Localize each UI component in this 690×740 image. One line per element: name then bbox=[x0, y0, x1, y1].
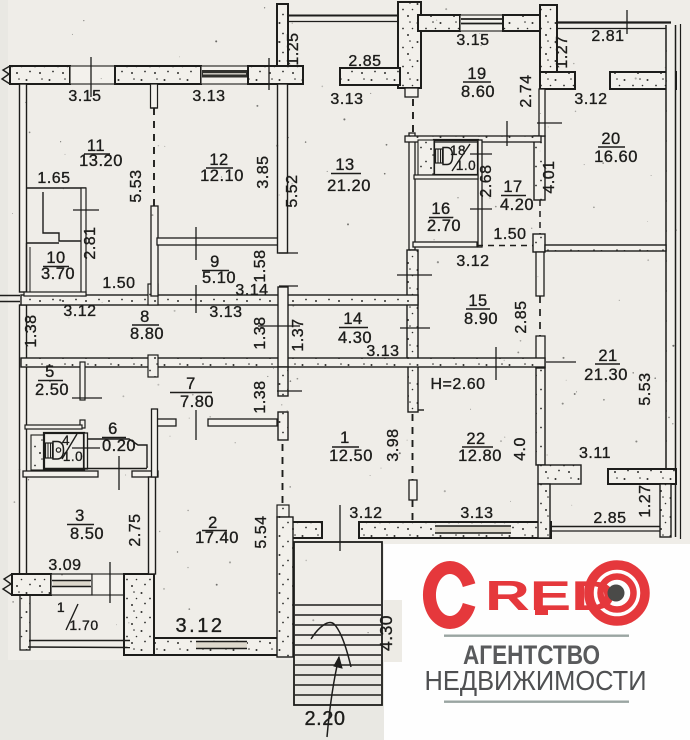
svg-text:14: 14 bbox=[343, 310, 362, 328]
svg-text:3.70: 3.70 bbox=[41, 265, 75, 283]
svg-text:13: 13 bbox=[335, 156, 354, 174]
svg-text:3.12: 3.12 bbox=[349, 505, 382, 522]
svg-text:16: 16 bbox=[431, 200, 450, 218]
svg-text:8.90: 8.90 bbox=[464, 310, 498, 328]
svg-text:2.50: 2.50 bbox=[35, 381, 69, 399]
svg-text:5: 5 bbox=[45, 363, 55, 381]
svg-text:17: 17 bbox=[503, 178, 522, 196]
svg-text:8.60: 8.60 bbox=[461, 83, 495, 101]
svg-text:3.13: 3.13 bbox=[209, 304, 242, 321]
svg-text:3.15: 3.15 bbox=[456, 32, 489, 49]
svg-text:15: 15 bbox=[468, 292, 487, 310]
svg-text:13.20: 13.20 bbox=[79, 152, 123, 170]
svg-text:2.85: 2.85 bbox=[513, 300, 530, 333]
svg-text:2.85: 2.85 bbox=[593, 510, 626, 527]
svg-text:5.10: 5.10 bbox=[202, 269, 236, 287]
svg-text:3.13: 3.13 bbox=[460, 505, 493, 522]
svg-text:1.27: 1.27 bbox=[554, 35, 571, 68]
svg-text:3.13: 3.13 bbox=[366, 343, 399, 360]
svg-text:17.40: 17.40 bbox=[195, 529, 239, 547]
svg-text:12.80: 12.80 bbox=[458, 447, 502, 465]
svg-text:1.50: 1.50 bbox=[102, 275, 135, 292]
svg-text:12.10: 12.10 bbox=[200, 167, 244, 185]
svg-text:5.53: 5.53 bbox=[128, 169, 145, 202]
svg-text:7.80: 7.80 bbox=[180, 393, 214, 411]
svg-text:1.25: 1.25 bbox=[285, 32, 302, 65]
svg-text:1.27: 1.27 bbox=[637, 484, 654, 517]
svg-text:3.13: 3.13 bbox=[330, 91, 363, 108]
svg-text:8.80: 8.80 bbox=[130, 325, 164, 343]
svg-text:3.13: 3.13 bbox=[192, 88, 225, 105]
svg-text:1.38: 1.38 bbox=[252, 316, 269, 349]
svg-text:3.12: 3.12 bbox=[176, 615, 225, 637]
svg-text:2.74: 2.74 bbox=[518, 74, 535, 107]
svg-text:3: 3 bbox=[75, 507, 85, 525]
svg-text:H=2.60: H=2.60 bbox=[430, 376, 485, 393]
svg-text:3.09: 3.09 bbox=[48, 557, 81, 574]
svg-text:12.50: 12.50 bbox=[329, 447, 373, 465]
svg-text:3.85: 3.85 bbox=[255, 155, 272, 188]
svg-text:2.81: 2.81 bbox=[82, 226, 99, 259]
svg-text:3.98: 3.98 bbox=[385, 428, 402, 461]
svg-text:5.53: 5.53 bbox=[637, 372, 654, 405]
svg-text:3.12: 3.12 bbox=[574, 91, 607, 108]
svg-text:5.52: 5.52 bbox=[284, 174, 301, 207]
svg-text:1.70: 1.70 bbox=[69, 617, 98, 633]
svg-text:21.30: 21.30 bbox=[584, 366, 628, 384]
svg-text:8: 8 bbox=[140, 308, 150, 326]
svg-text:3.11: 3.11 bbox=[579, 445, 611, 462]
svg-text:1.65: 1.65 bbox=[37, 170, 70, 187]
svg-text:4.20: 4.20 bbox=[500, 196, 534, 214]
svg-text:4.01: 4.01 bbox=[541, 160, 558, 193]
svg-text:1.0: 1.0 bbox=[63, 449, 83, 464]
svg-text:1: 1 bbox=[340, 429, 350, 447]
svg-text:6: 6 bbox=[108, 420, 118, 438]
svg-text:7: 7 bbox=[186, 375, 196, 393]
svg-text:0.20: 0.20 bbox=[102, 437, 136, 455]
svg-text:19: 19 bbox=[467, 65, 486, 83]
svg-text:2.75: 2.75 bbox=[127, 513, 144, 546]
svg-text:1.50: 1.50 bbox=[493, 226, 526, 243]
svg-text:5.54: 5.54 bbox=[253, 515, 270, 548]
svg-text:1: 1 bbox=[57, 599, 65, 615]
svg-text:2.85: 2.85 bbox=[348, 53, 381, 70]
svg-text:18: 18 bbox=[450, 143, 466, 158]
svg-text:22: 22 bbox=[466, 430, 485, 448]
svg-text:3.12: 3.12 bbox=[63, 303, 96, 320]
svg-text:16.60: 16.60 bbox=[594, 148, 638, 166]
svg-text:2.20: 2.20 bbox=[305, 708, 346, 730]
svg-text:3.12: 3.12 bbox=[456, 253, 489, 270]
svg-text:3.14: 3.14 bbox=[235, 282, 268, 299]
svg-text:4.0: 4.0 bbox=[512, 437, 529, 461]
svg-text:1.0: 1.0 bbox=[456, 158, 476, 173]
svg-text:21.20: 21.20 bbox=[327, 177, 371, 195]
svg-text:3.15: 3.15 bbox=[68, 88, 101, 105]
svg-text:2.81: 2.81 bbox=[591, 28, 624, 45]
svg-text:2.68: 2.68 bbox=[478, 164, 495, 197]
svg-text:1.38: 1.38 bbox=[23, 314, 40, 347]
svg-text:20: 20 bbox=[601, 130, 620, 148]
svg-text:4: 4 bbox=[62, 433, 70, 448]
svg-text:1.37: 1.37 bbox=[290, 318, 307, 351]
svg-text:21: 21 bbox=[598, 347, 617, 365]
svg-text:4.30: 4.30 bbox=[376, 615, 396, 651]
svg-text:НЕДВИЖИМОСТИ: НЕДВИЖИМОСТИ bbox=[425, 665, 647, 696]
svg-text:1.38: 1.38 bbox=[252, 380, 269, 413]
svg-text:8.50: 8.50 bbox=[70, 525, 104, 543]
svg-text:1.58: 1.58 bbox=[252, 249, 269, 282]
